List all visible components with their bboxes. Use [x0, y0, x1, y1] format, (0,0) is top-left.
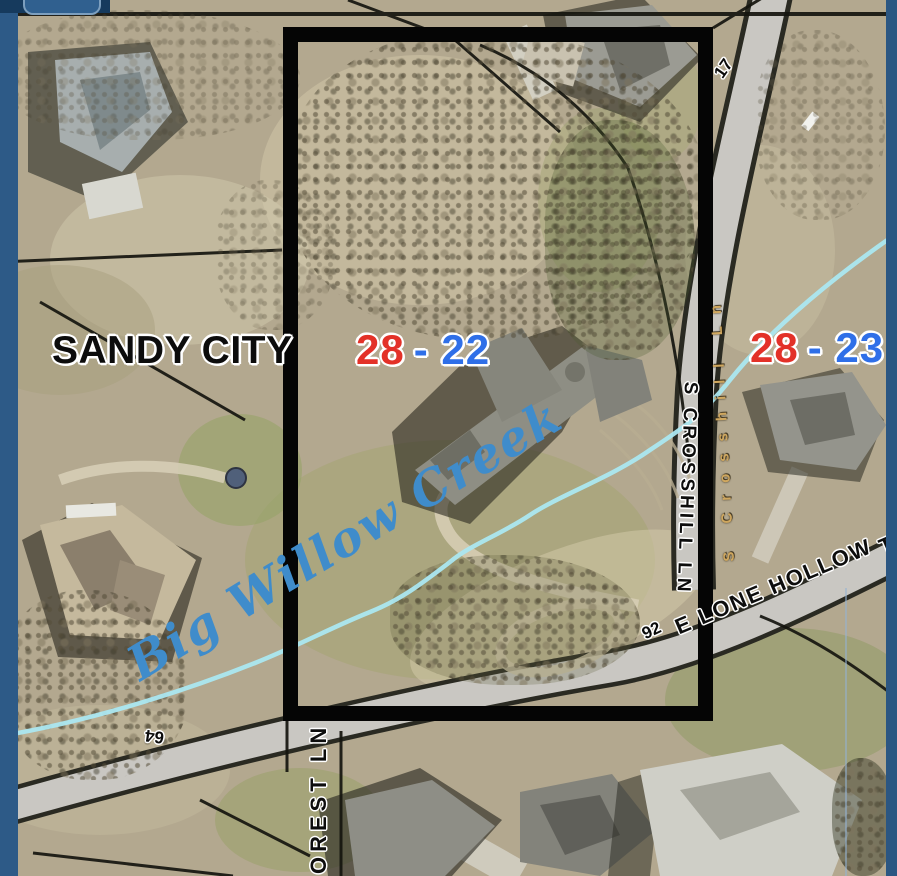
parcel-number-red: 28 — [356, 326, 405, 373]
city-label: SANDY CITY — [52, 331, 293, 370]
map-toolbar-button-partial[interactable] — [23, 0, 101, 15]
selected-parcel-outline — [283, 27, 713, 721]
parcel-number-28-22: 28- 22 — [356, 329, 490, 371]
parcel-number-blue: - 22 — [414, 326, 490, 373]
lot-marker-64: 64 — [144, 727, 165, 746]
map-viewport[interactable]: SANDY CITY 28- 22 28- 23 Big Willow Cree… — [0, 0, 897, 876]
street-label-forest: OREST LN — [308, 723, 330, 874]
parcel-number-blue: - 23 — [808, 324, 884, 371]
right-frame-strip — [886, 0, 897, 876]
left-frame-strip — [0, 0, 18, 876]
parcel-number-red: 28 — [750, 324, 799, 371]
parcel-number-28-23: 28- 23 — [750, 327, 884, 369]
